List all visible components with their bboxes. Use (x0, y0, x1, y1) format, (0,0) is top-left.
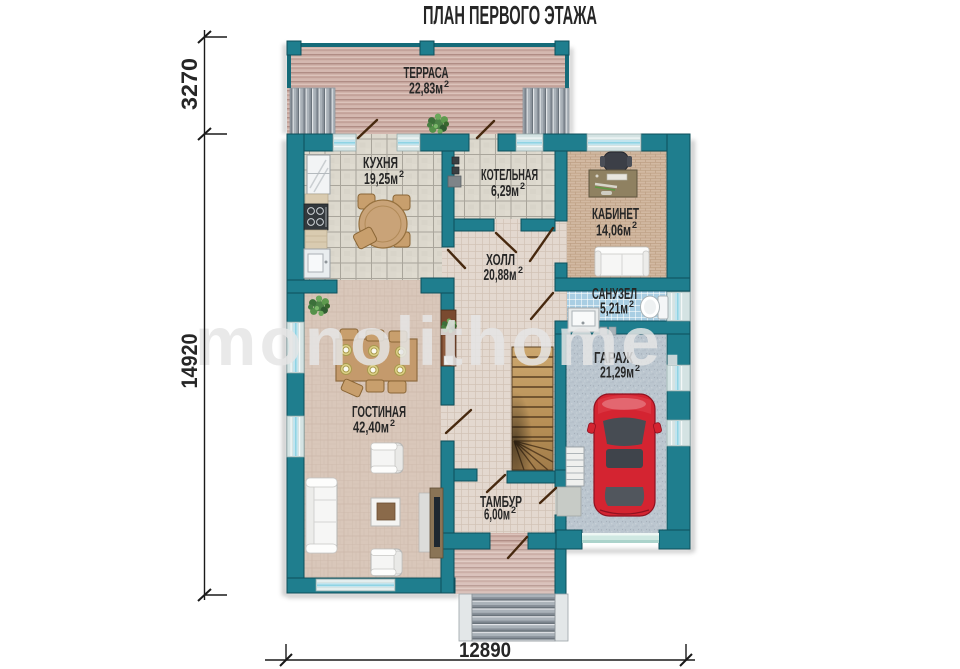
svg-text:2: 2 (390, 418, 395, 428)
svg-text:2: 2 (444, 79, 449, 89)
svg-text:12890: 12890 (459, 639, 511, 662)
svg-text:2: 2 (511, 505, 516, 515)
svg-text:2: 2 (518, 265, 523, 275)
svg-text:ГОСТИНАЯ: ГОСТИНАЯ (352, 404, 406, 421)
svg-text:2: 2 (632, 220, 637, 230)
svg-text:14920: 14920 (177, 334, 202, 389)
svg-text:3270: 3270 (177, 58, 202, 110)
svg-text:2: 2 (520, 181, 525, 191)
svg-text:2: 2 (399, 169, 404, 179)
svg-text:КОТЕЛЬНАЯ: КОТЕЛЬНАЯ (481, 167, 538, 184)
svg-text:20,88м: 20,88м (484, 267, 517, 284)
svg-text:42,40м: 42,40м (353, 420, 389, 437)
svg-text:6,00м: 6,00м (484, 507, 510, 524)
svg-text:ТЕРРАСА: ТЕРРАСА (404, 65, 449, 82)
svg-text:22,83м: 22,83м (409, 81, 443, 98)
svg-text:КУХНЯ: КУХНЯ (363, 155, 398, 172)
svg-text:ПЛАН ПЕРВОГО ЭТАЖА: ПЛАН ПЕРВОГО ЭТАЖА (423, 0, 597, 30)
svg-text:19,25м: 19,25м (364, 171, 398, 188)
svg-text:14,06м: 14,06м (596, 223, 631, 240)
svg-text:6,29м: 6,29м (491, 183, 519, 200)
